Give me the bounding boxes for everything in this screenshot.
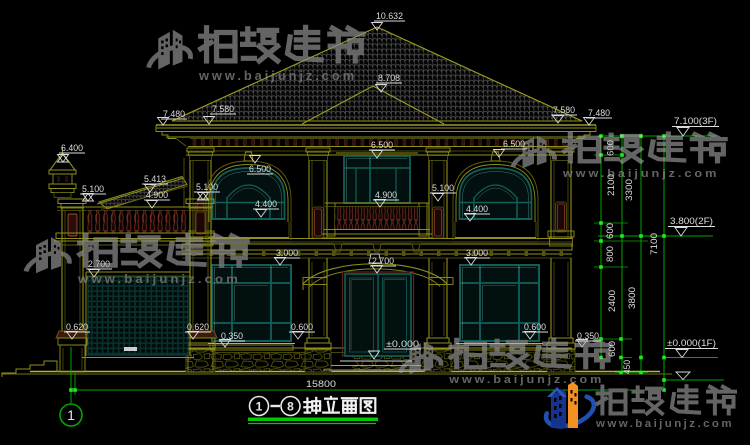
svg-text:15800: 15800 [306, 379, 336, 390]
svg-text:0.620: 0.620 [66, 322, 88, 332]
svg-text:800: 800 [605, 246, 615, 262]
svg-text:7.580: 7.580 [553, 105, 575, 115]
svg-text:7.100(3F): 7.100(3F) [674, 116, 717, 126]
svg-text:±0.000(1F): ±0.000(1F) [667, 338, 716, 348]
svg-text:4.900: 4.900 [375, 190, 397, 200]
svg-text:5.100: 5.100 [82, 184, 104, 194]
svg-text:3.000: 3.000 [466, 248, 488, 258]
svg-text:www.baijunjz.com: www.baijunjz.com [448, 373, 604, 386]
svg-text:0.620: 0.620 [187, 322, 209, 332]
svg-text:2.700: 2.700 [372, 256, 394, 266]
svg-text:4.400: 4.400 [466, 204, 488, 214]
svg-text:1: 1 [67, 407, 75, 423]
svg-text:3.800(2F): 3.800(2F) [670, 216, 713, 226]
svg-text:4.900: 4.900 [146, 190, 168, 200]
svg-text:www.baijunjz.com: www.baijunjz.com [562, 167, 720, 180]
svg-text:5.100: 5.100 [432, 183, 454, 193]
svg-text:6.500: 6.500 [503, 139, 525, 149]
svg-text:6.400: 6.400 [61, 143, 83, 153]
svg-text:7100: 7100 [649, 233, 659, 255]
svg-text:10.632: 10.632 [376, 11, 403, 21]
svg-text:0.600: 0.600 [524, 322, 546, 332]
svg-text:3300: 3300 [624, 179, 634, 201]
svg-text:8: 8 [287, 400, 294, 414]
svg-text:www.baijunjz.com: www.baijunjz.com [77, 272, 241, 286]
svg-text:7.480: 7.480 [588, 108, 610, 118]
svg-text:4.400: 4.400 [255, 199, 277, 209]
svg-text:www.baijunjz.com: www.baijunjz.com [595, 418, 734, 430]
svg-text:0.600: 0.600 [291, 322, 313, 332]
svg-text:www.baijunjz.com: www.baijunjz.com [198, 68, 357, 83]
svg-text:600: 600 [605, 223, 615, 239]
svg-text:2400: 2400 [607, 290, 617, 312]
svg-text:5.100: 5.100 [196, 182, 218, 192]
svg-text:8.708: 8.708 [378, 73, 400, 83]
svg-text:1: 1 [256, 400, 263, 414]
svg-text:3800: 3800 [627, 287, 637, 309]
svg-text:3.000: 3.000 [276, 248, 298, 258]
svg-text:7.580: 7.580 [212, 104, 234, 114]
svg-text:6.500: 6.500 [371, 140, 393, 150]
svg-text:450: 450 [622, 360, 632, 374]
svg-text:5.413: 5.413 [144, 174, 166, 184]
svg-text:6.500: 6.500 [249, 164, 271, 174]
